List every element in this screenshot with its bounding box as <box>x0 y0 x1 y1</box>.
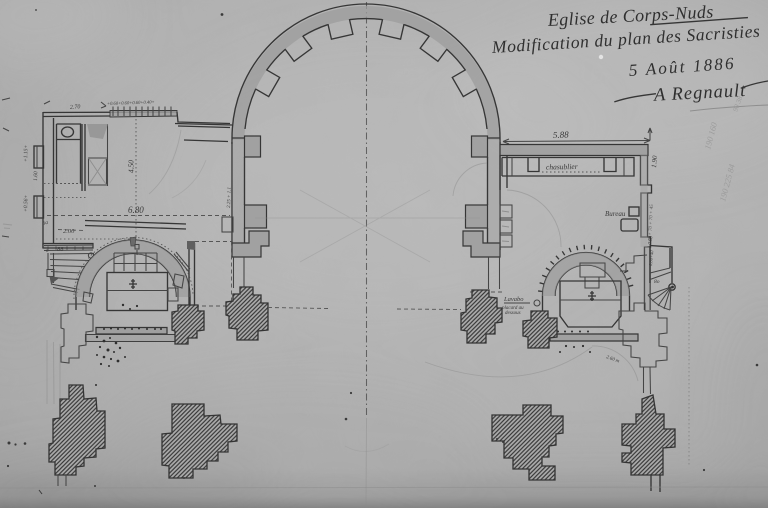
svg-text:2.70: 2.70 <box>70 104 81 111</box>
svg-text:8o: 8o <box>654 279 660 285</box>
svg-text:Lavabo: Lavabo <box>503 296 524 303</box>
svg-text:4.50: 4.50 <box>127 160 136 173</box>
svg-text:1.60: 1.60 <box>33 171 39 181</box>
svg-text:Bureau: Bureau <box>605 210 626 218</box>
svg-text:88: 88 <box>57 246 64 253</box>
svg-text:+0.56+: +0.56+ <box>23 195 30 213</box>
svg-text:6.80: 6.80 <box>128 205 144 215</box>
svg-text:chasublier: chasublier <box>546 162 578 172</box>
svg-text:dessous: dessous <box>505 311 521 316</box>
svg-text:+1.15+: +1.15+ <box>23 145 30 163</box>
svg-text:2.00: 2.00 <box>63 228 75 235</box>
svg-text:5.88: 5.88 <box>553 129 570 140</box>
svg-text:2.25 + 1.1: 2.25 + 1.1 <box>227 187 233 208</box>
svg-text:1.90: 1.90 <box>650 155 659 168</box>
